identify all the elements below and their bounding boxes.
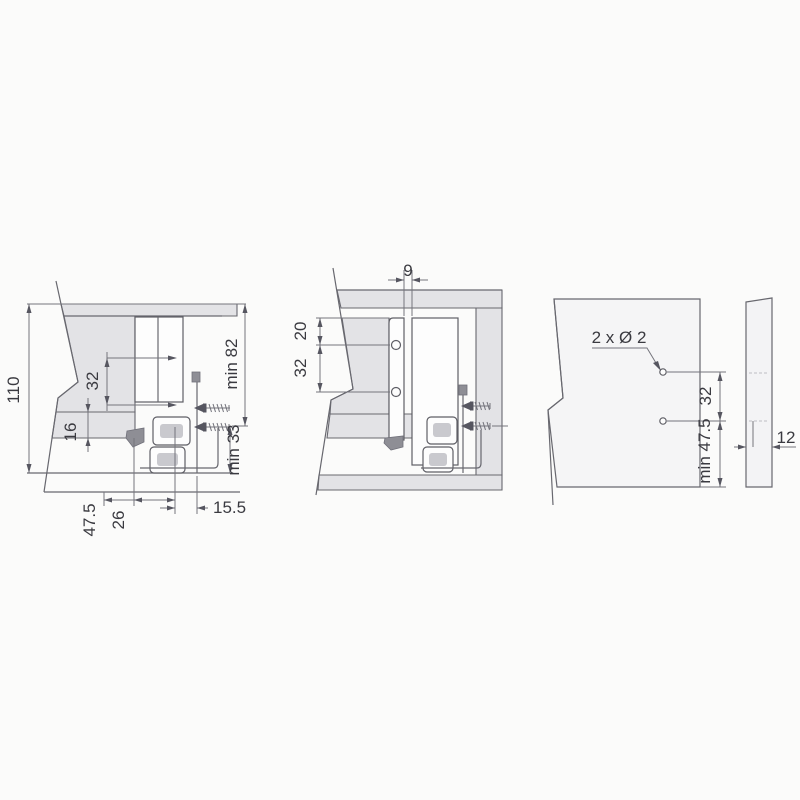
- dim-26-label: 26: [109, 511, 128, 530]
- bracket-hole-lower: [392, 388, 401, 397]
- dim-32-front-label: 32: [291, 359, 310, 378]
- drill-hole-lower: [660, 418, 666, 424]
- dim-min-33: min 33: [224, 424, 243, 475]
- panel-edge-view: 12: [734, 298, 796, 487]
- scanned-technical-drawing-page: 110 32 16 47.5: [0, 0, 800, 800]
- fixing-clamp: [126, 428, 144, 447]
- dim-min-47_5-label: min 47.5: [695, 418, 714, 483]
- rail-hook-upper-core: [160, 424, 183, 438]
- rail-hook-upper-core: [433, 423, 451, 437]
- dim-min-47_5: min 47.5: [695, 418, 726, 487]
- cabinet-top-band: [337, 290, 502, 308]
- dim-16-label: 16: [61, 423, 80, 442]
- mounting-screw-upper: [194, 404, 230, 413]
- back-panel-view: 2 x Ø 2 32 min 47.5: [548, 299, 726, 505]
- dim-15_5: 15.5: [160, 476, 246, 517]
- cabinet-bottom-band: [318, 475, 502, 490]
- dim-20-label: 20: [291, 322, 310, 341]
- dim-32-back-label: 32: [83, 372, 102, 391]
- dim-min-33-label: min 33: [224, 424, 243, 475]
- front-section-view: 9 20 32: [291, 261, 508, 495]
- dim-min-82-label: min 82: [222, 338, 241, 389]
- cabinet-side-area: [330, 318, 389, 414]
- rail-hook-lower-core: [429, 453, 447, 466]
- panel-edge-strip: [746, 298, 772, 487]
- technical-drawing: 110 32 16 47.5: [0, 0, 800, 800]
- drawer-back-panel: [135, 317, 183, 402]
- rail-top-nub: [459, 385, 467, 395]
- dim-12-label: 12: [777, 428, 796, 447]
- back-section-view: 110 32 16 47.5: [4, 281, 248, 537]
- dim-32-panel-label: 32: [696, 387, 715, 406]
- cabinet-side-area: [56, 316, 135, 412]
- bracket-hole-upper: [392, 341, 401, 350]
- dim-110-label: 110: [4, 376, 23, 403]
- fixing-clamp: [384, 436, 403, 450]
- cabinet-top-band: [61, 304, 237, 316]
- cabinet-front-board: [476, 308, 502, 475]
- rail-top-nub: [192, 372, 200, 382]
- dim-110: 110: [4, 304, 32, 473]
- front-bracket-plate: [389, 318, 404, 440]
- dim-15_5-label: 15.5: [213, 498, 246, 517]
- holes-label: 2 x Ø 2: [592, 328, 647, 347]
- dim-9-label: 9: [403, 261, 412, 280]
- dim-47_5-label: 47.5: [80, 503, 99, 536]
- drill-hole-upper: [660, 369, 666, 375]
